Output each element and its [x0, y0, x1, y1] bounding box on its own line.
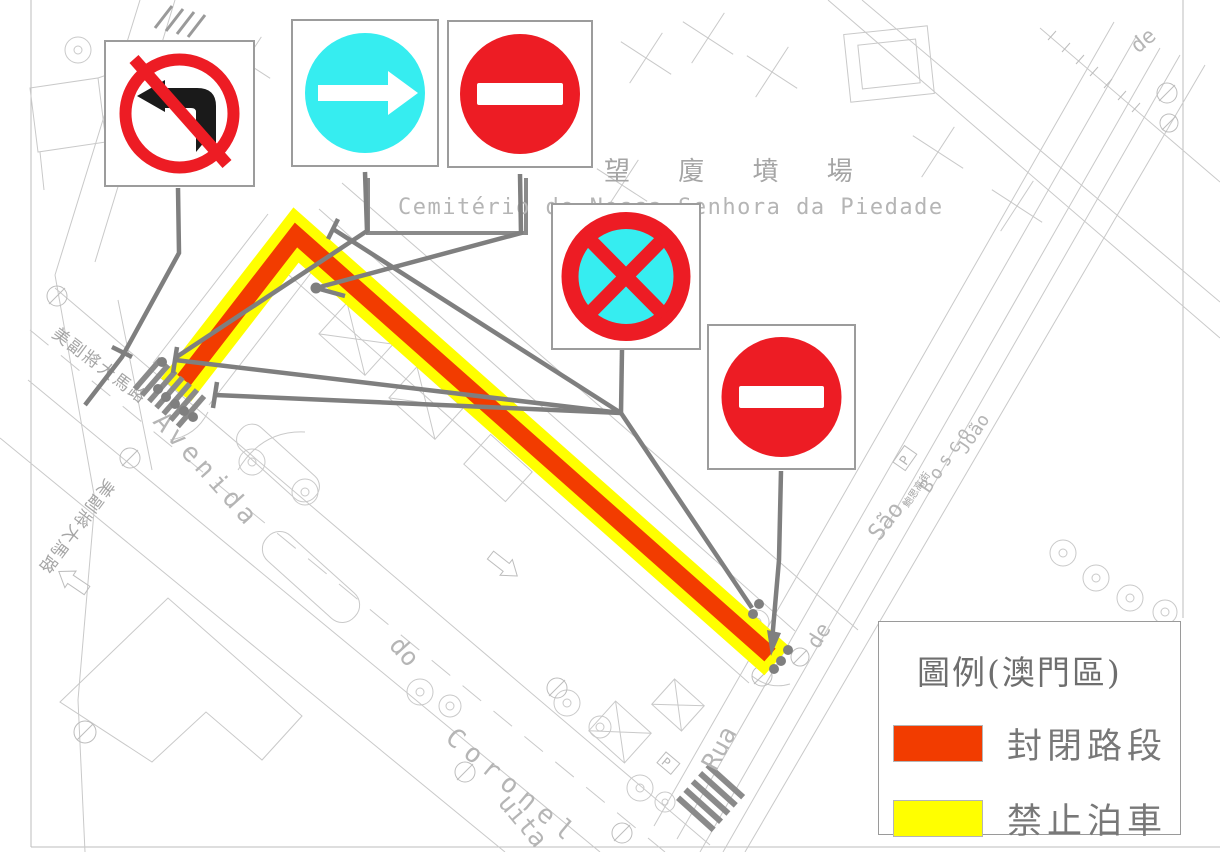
no-parking-swatch — [893, 800, 983, 837]
legend-title: 圖例(澳門區) — [917, 646, 1180, 694]
label-mesquita-cn-2: 美副將大馬路 — [33, 475, 118, 578]
no-entry-sign-1 — [448, 21, 592, 167]
label-do: do — [384, 631, 426, 673]
no-entry-bar-icon — [739, 386, 824, 408]
svg-text:P: P — [659, 755, 674, 770]
legend-item-closed-road: 封閉路段 — [893, 718, 1180, 769]
label-mong-ha-cemetery-cn: 望 廈 墳 場 — [604, 157, 873, 187]
no-entry-sign-2 — [708, 325, 855, 469]
traffic-arrangement-map: P P 望 廈 墳 場 Cemitério de Nossa Senhora d… — [0, 0, 1220, 852]
mandatory-turn-right-sign — [292, 20, 438, 166]
legend: 圖例(澳門區) 封閉路段 禁止泊車 — [878, 621, 1181, 835]
legend-label-no-parking: 禁止泊車 — [1007, 793, 1167, 844]
label-rua: Rua — [696, 721, 743, 774]
label-coronel: Coronel — [440, 722, 586, 851]
no-entry-bar-icon — [477, 83, 563, 105]
label-avenida: Avenida — [147, 407, 266, 535]
parking-marker: P — [656, 752, 679, 775]
flow-arrow — [484, 547, 523, 584]
hatch-marks — [155, 6, 205, 37]
legend-label-closed-road: 封閉路段 — [1007, 718, 1167, 769]
parking-marker: P — [893, 446, 918, 472]
no-left-turn-sign — [105, 41, 254, 186]
label-de-2: de — [1126, 23, 1161, 58]
no-stopping-sign — [552, 204, 700, 349]
legend-item-no-parking: 禁止泊車 — [893, 793, 1180, 844]
closed-road-swatch — [893, 725, 983, 762]
